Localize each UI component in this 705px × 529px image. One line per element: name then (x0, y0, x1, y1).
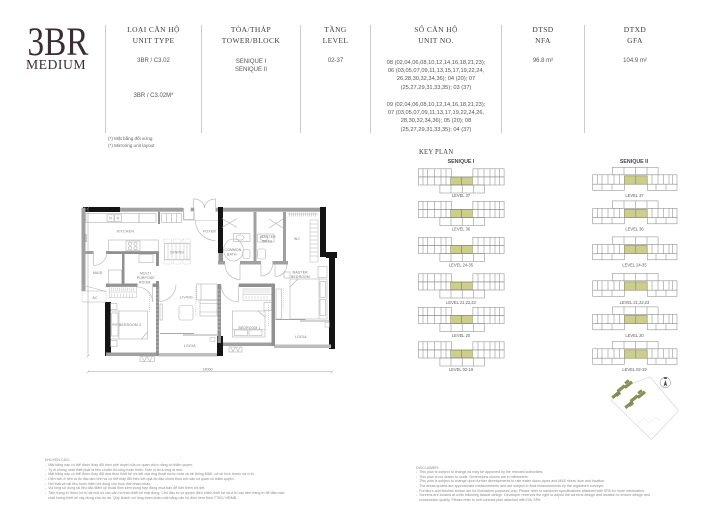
svg-text:LEVEL 37: LEVEL 37 (625, 193, 644, 198)
svg-text:LOGIA: LOGIA (295, 335, 307, 339)
svg-text:LEVEL 21,22,23: LEVEL 21,22,23 (446, 300, 476, 305)
svg-text:MASTER: MASTER (293, 270, 309, 274)
svg-text:ROOM: ROOM (139, 280, 150, 284)
svg-text:LEVEL 24-35: LEVEL 24-35 (449, 263, 474, 268)
svg-text:LEVEL 36: LEVEL 36 (625, 227, 644, 232)
svg-text:LEVEL 37: LEVEL 37 (452, 193, 471, 198)
svg-text:14000: 14000 (203, 367, 213, 371)
svg-text:BATH: BATH (263, 239, 273, 243)
svg-text:MAID: MAID (93, 271, 103, 275)
svg-text:LEVEL 02-19: LEVEL 02-19 (449, 367, 474, 372)
svg-text:BEDROOM: BEDROOM (291, 275, 310, 279)
svg-text:LEVEL 20: LEVEL 20 (625, 333, 644, 338)
svg-text:WC: WC (294, 237, 301, 241)
svg-text:BEDROOM 1: BEDROOM 1 (239, 326, 261, 330)
svg-text:BATH: BATH (227, 253, 237, 257)
svg-text:FOYER: FOYER (203, 230, 216, 234)
svg-text:MULTI: MULTI (140, 272, 151, 276)
svg-text:LIVING: LIVING (180, 295, 193, 299)
svg-text:AC: AC (93, 296, 99, 300)
svg-text:PURPOSE: PURPOSE (137, 276, 156, 280)
svg-text:MASTER: MASTER (261, 235, 277, 239)
svg-text:LEVEL 02-19: LEVEL 02-19 (622, 367, 647, 372)
svg-text:LOGIA: LOGIA (184, 344, 196, 348)
svg-text:BEDROOM 2: BEDROOM 2 (119, 323, 141, 327)
svg-text:LEVEL 20: LEVEL 20 (452, 333, 471, 338)
svg-text:KITCHEN: KITCHEN (117, 230, 134, 234)
svg-text:COMMON: COMMON (225, 248, 242, 252)
svg-text:DINING: DINING (171, 250, 185, 254)
svg-text:8350: 8350 (84, 234, 88, 242)
svg-text:LEVEL 36: LEVEL 36 (452, 227, 471, 232)
svg-text:LEVEL 21,22,23: LEVEL 21,22,23 (620, 300, 650, 305)
svg-text:LEVEL 24-35: LEVEL 24-35 (622, 263, 647, 268)
